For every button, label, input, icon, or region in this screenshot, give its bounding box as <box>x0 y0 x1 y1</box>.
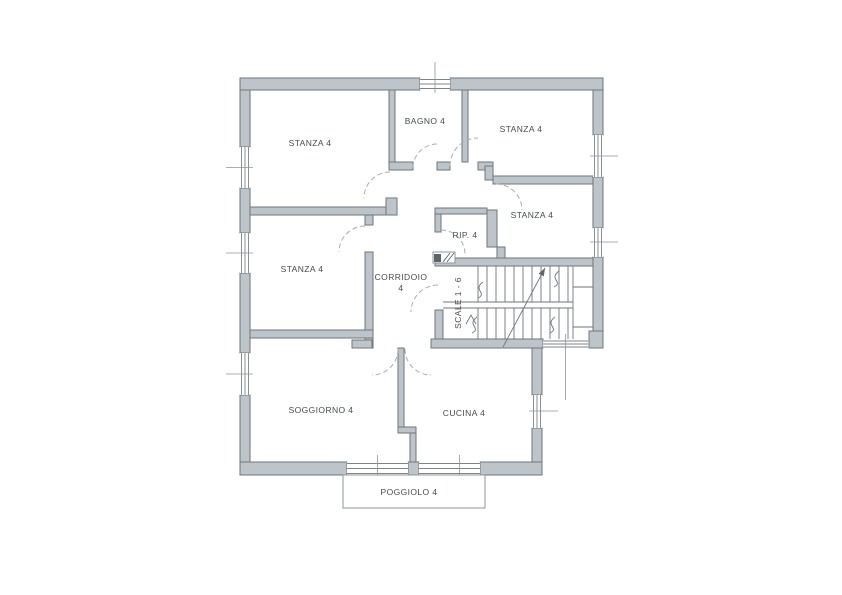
stair-break-mark <box>478 282 483 298</box>
room-label-corridoio: CORRIDOIO <box>375 272 428 282</box>
wall-segment <box>365 215 373 225</box>
wall-segment <box>389 90 395 162</box>
window-top <box>420 62 450 93</box>
door-arc-bagno <box>413 144 437 168</box>
stair-arrow-head <box>539 268 545 276</box>
room-label-stanza-e: STANZA 4 <box>511 210 554 220</box>
shaft-fill <box>434 254 441 262</box>
wall-segment <box>435 208 487 214</box>
door-arc-corridor-north <box>364 172 390 198</box>
room-label-poggiolo: POGGIOLO 4 <box>381 487 438 497</box>
wall-segment <box>250 330 373 338</box>
door-arc-entry <box>411 285 438 312</box>
wall-segment <box>462 90 468 162</box>
wall-segment <box>497 247 505 259</box>
room-label-corridoio-number: 4 <box>398 283 403 293</box>
wall-segment <box>240 188 250 233</box>
stairs <box>443 266 593 347</box>
wall-segment <box>389 162 413 170</box>
wall-segment <box>593 90 603 135</box>
stair-break-mark <box>472 317 477 333</box>
wall-segment <box>431 339 543 348</box>
wall-segment <box>480 462 542 475</box>
door-arc-stanza-w <box>339 226 365 252</box>
stair-treads-lower <box>478 308 568 339</box>
wall-segment <box>352 340 372 348</box>
wall-segment <box>493 176 593 184</box>
room-label-stanza-w: STANZA 4 <box>281 264 324 274</box>
room-label-cucina: CUCINA 4 <box>443 408 485 418</box>
window-left-2 <box>226 233 253 273</box>
wall-segment <box>532 347 542 395</box>
room-label-stanza-nw: STANZA 4 <box>289 138 332 148</box>
window-right-1 <box>590 135 618 177</box>
wall-segment <box>398 427 416 433</box>
window-right-2 <box>590 228 618 257</box>
wall-segment <box>485 166 493 180</box>
wall-pillar <box>408 462 419 475</box>
room-label-stanza-ne: STANZA 4 <box>500 124 543 134</box>
window-stairwell-bottom <box>543 334 588 400</box>
wall-segment <box>593 177 603 228</box>
door-arc-stanza-e <box>496 184 522 210</box>
wall-segment <box>435 310 443 339</box>
wall-segment <box>437 162 450 170</box>
door-arc-cucina <box>405 349 431 375</box>
window-left-1 <box>226 147 253 188</box>
room-label-rip: RIP. 4 <box>453 230 478 240</box>
wall-segment <box>398 348 404 427</box>
wall-segment <box>450 78 603 90</box>
wall-segment <box>240 273 250 353</box>
stair-treads-upper <box>478 266 568 302</box>
room-labels: STANZA 4 BAGNO 4 STANZA 4 STANZA 4 RIP. … <box>281 116 554 497</box>
wall-segment <box>250 207 386 215</box>
wall-segment <box>240 90 250 147</box>
door-arc-soggiorno <box>372 349 398 375</box>
wall-segment <box>487 210 497 247</box>
wall-segment <box>410 433 416 462</box>
wall-pillar <box>386 198 397 215</box>
window-cucina-right <box>529 395 558 428</box>
stair-break-mark <box>550 317 555 333</box>
wall-segment <box>240 78 420 90</box>
shaft-symbol <box>433 252 455 263</box>
wall-pillar <box>589 331 603 348</box>
stair-break-mark <box>554 271 559 287</box>
stair-landing-right <box>573 287 593 327</box>
wall-segment <box>240 462 347 475</box>
room-label-bagno: BAGNO 4 <box>405 116 446 126</box>
window-left-3 <box>226 353 253 395</box>
room-label-soggiorno: SOGGIORNO 4 <box>289 405 354 415</box>
wall-segment <box>532 428 542 462</box>
room-label-scale: SCALE 1 - 6 <box>453 277 463 329</box>
floor-plan-canvas: STANZA 4 BAGNO 4 STANZA 4 STANZA 4 RIP. … <box>0 0 842 595</box>
stair-direction-line <box>503 268 545 347</box>
floor-plan-page: STANZA 4 BAGNO 4 STANZA 4 STANZA 4 RIP. … <box>0 0 842 595</box>
wall-segment <box>435 214 441 232</box>
wall-segment <box>435 258 593 266</box>
